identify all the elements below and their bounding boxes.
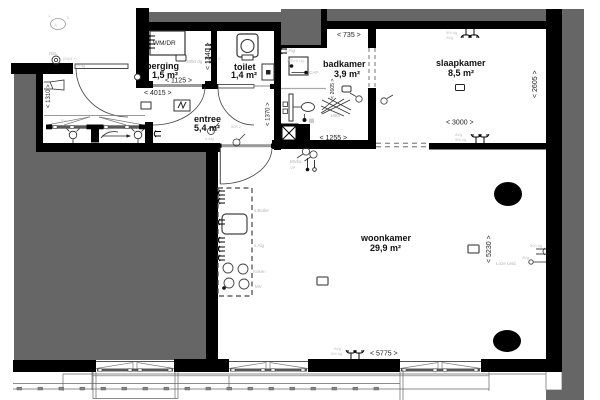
svg-text:< 1255 >: < 1255 > bbox=[320, 135, 348, 142]
svg-text:50t dg: 50t dg bbox=[331, 351, 342, 356]
svg-text:1685: 1685 bbox=[330, 113, 341, 118]
svg-text:75+: 75+ bbox=[60, 118, 67, 123]
svg-text:< 2605 >: < 2605 > bbox=[330, 79, 336, 99]
svg-text:< 1370 >: < 1370 > bbox=[266, 102, 272, 126]
svg-text:badkamer: badkamer bbox=[323, 59, 366, 69]
svg-text:CAP: CAP bbox=[309, 70, 318, 75]
svg-text:s.Alg: s.Alg bbox=[285, 48, 296, 53]
svg-text:8,5 m²: 8,5 m² bbox=[448, 68, 474, 78]
svg-text:1050 dg: 1050 dg bbox=[186, 59, 203, 64]
svg-text:WM/DR: WM/DR bbox=[153, 40, 176, 47]
svg-text:500 dg: 500 dg bbox=[530, 243, 542, 248]
svg-text:Loze Leid.: Loze Leid. bbox=[496, 261, 517, 266]
svg-text:s.Boiler: s.Boiler bbox=[254, 208, 270, 213]
svg-text:VP: VP bbox=[290, 165, 296, 170]
svg-text:505,2: 505,2 bbox=[231, 124, 242, 129]
svg-text:AVg: AVg bbox=[522, 255, 529, 260]
svg-text:3,9 m²: 3,9 m² bbox=[334, 69, 360, 79]
svg-text:< 5775 >: < 5775 > bbox=[370, 351, 398, 358]
svg-text:< 4015 >: < 4015 > bbox=[144, 90, 172, 97]
svg-text:50+dg: 50+dg bbox=[74, 63, 85, 68]
svg-text:< 1125 >: < 1125 > bbox=[165, 78, 192, 85]
svg-text:75+: 75+ bbox=[105, 127, 112, 132]
svg-text:< 1340 >: < 1340 > bbox=[205, 42, 212, 70]
svg-text:1,4 m²: 1,4 m² bbox=[231, 70, 257, 80]
svg-text:AVg: AVg bbox=[446, 35, 453, 40]
svg-text:s.Alg: s.Alg bbox=[205, 136, 214, 141]
svg-text:< 2605 >: < 2605 > bbox=[532, 70, 539, 98]
svg-text:29,9 m²: 29,9 m² bbox=[370, 243, 401, 253]
svg-text:A: A bbox=[54, 23, 57, 28]
svg-text:< 5230 >: < 5230 > bbox=[486, 235, 493, 263]
svg-text:Koken: Koken bbox=[253, 269, 266, 274]
svg-text:5,4 m²: 5,4 m² bbox=[194, 123, 220, 133]
svg-text:MVka: MVka bbox=[290, 159, 302, 164]
svg-text:V: V bbox=[218, 56, 221, 61]
svg-text:MV: MV bbox=[255, 284, 262, 289]
svg-text:(M)/4 +: (M)/4 + bbox=[63, 56, 76, 61]
svg-text:< 3000 >: < 3000 > bbox=[446, 120, 474, 127]
svg-text:< 735 >: < 735 > bbox=[337, 32, 361, 39]
svg-text:< 1310 >: < 1310 > bbox=[46, 84, 52, 108]
svg-text:REL: REL bbox=[49, 51, 58, 56]
svg-text:woonkamer: woonkamer bbox=[360, 233, 412, 243]
svg-text:slaapkamer: slaapkamer bbox=[436, 58, 486, 68]
svg-text:s.Alg: s.Alg bbox=[254, 243, 265, 248]
svg-text:50t dg: 50t dg bbox=[455, 137, 466, 142]
svg-text:WD+0 dg: WD+0 dg bbox=[287, 58, 304, 63]
